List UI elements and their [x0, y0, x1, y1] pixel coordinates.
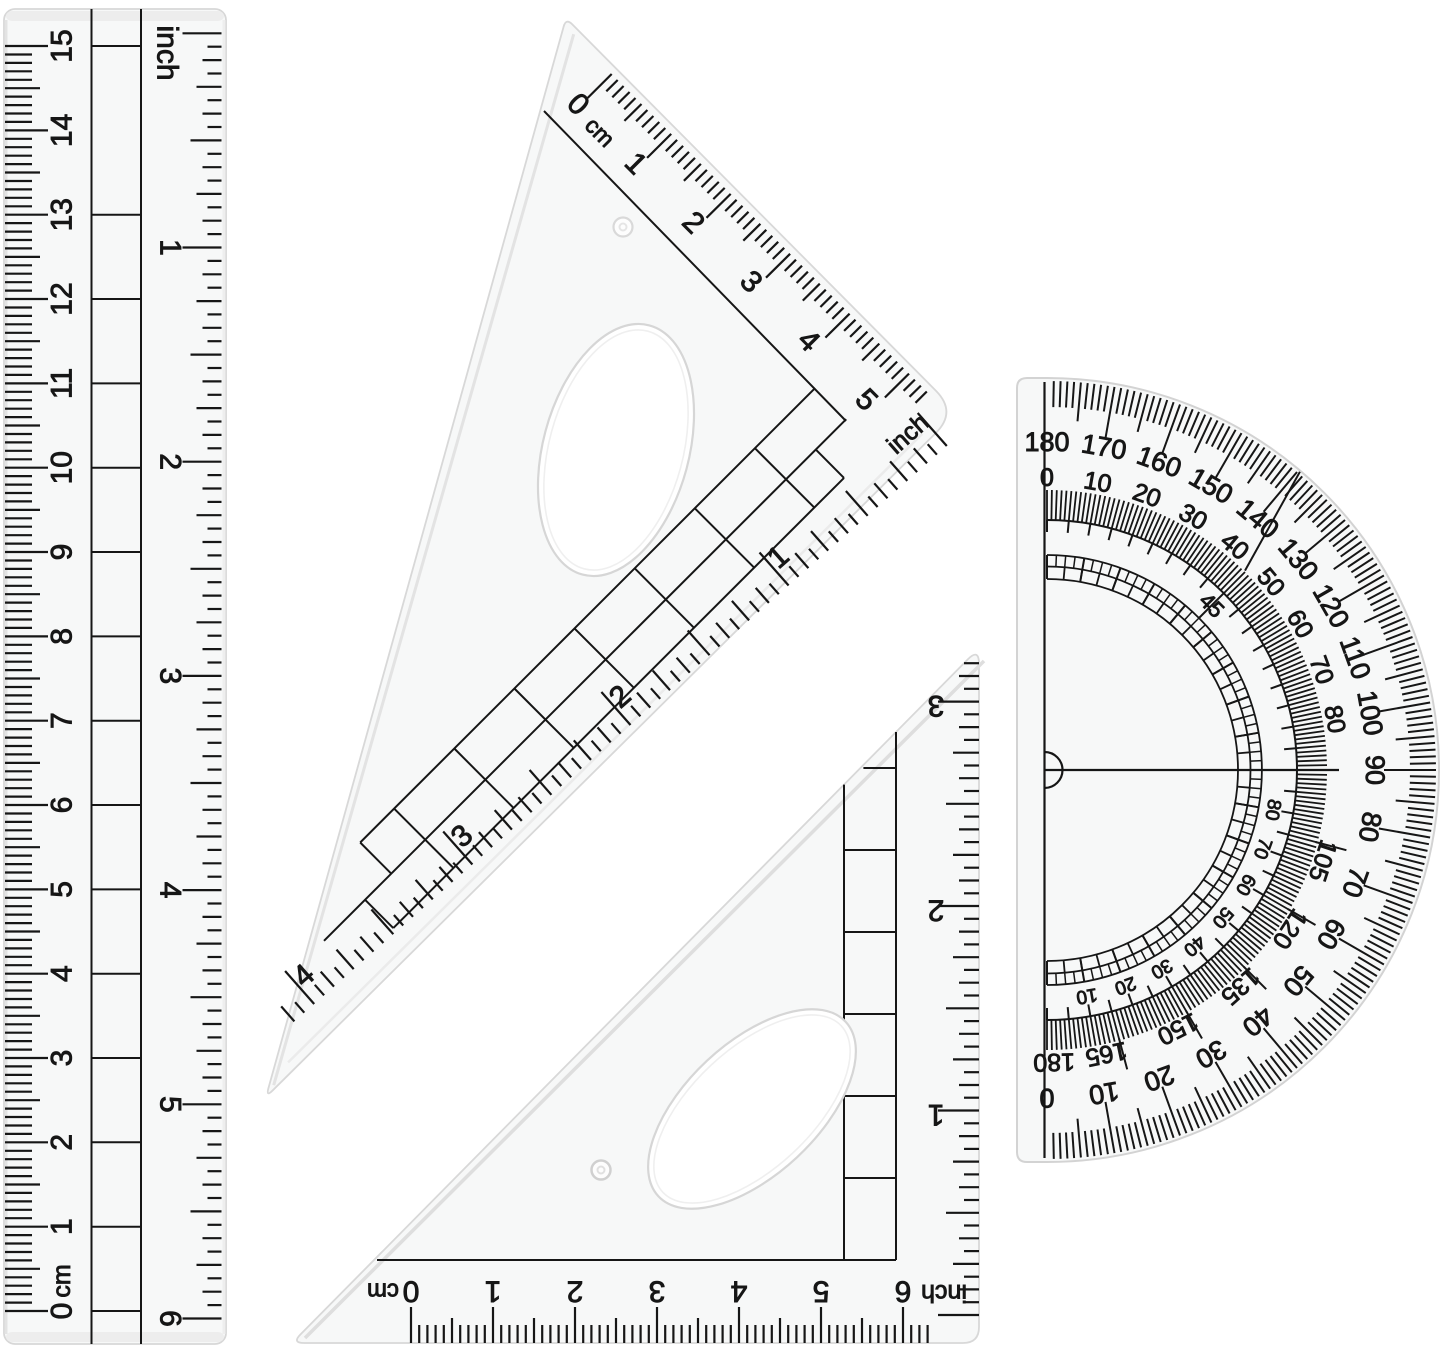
svg-text:2: 2 [154, 453, 187, 470]
svg-text:90: 90 [1360, 755, 1390, 785]
svg-text:180: 180 [1024, 427, 1069, 457]
svg-text:9: 9 [46, 544, 79, 561]
svg-text:1: 1 [46, 1218, 79, 1235]
svg-text:2: 2 [928, 894, 945, 927]
svg-text:10: 10 [1082, 466, 1114, 498]
svg-text:8: 8 [46, 628, 79, 645]
svg-text:10: 10 [1087, 1076, 1122, 1111]
svg-text:6: 6 [895, 1275, 912, 1308]
svg-text:0: 0 [46, 1303, 79, 1320]
svg-text:3: 3 [46, 1050, 79, 1067]
svg-text:5: 5 [813, 1275, 830, 1308]
svg-text:inch: inch [921, 1279, 967, 1307]
svg-text:5: 5 [154, 1096, 187, 1113]
svg-text:5: 5 [46, 881, 79, 898]
svg-text:80: 80 [1318, 703, 1350, 735]
svg-text:2: 2 [567, 1275, 584, 1308]
svg-text:10: 10 [46, 451, 79, 484]
svg-text:4: 4 [154, 882, 187, 899]
svg-text:3: 3 [649, 1275, 666, 1308]
svg-text:cm: cm [48, 1264, 76, 1297]
svg-text:4: 4 [46, 965, 79, 982]
svg-text:cm: cm [367, 1278, 399, 1305]
svg-text:6: 6 [46, 797, 79, 814]
svg-text:6: 6 [154, 1310, 187, 1327]
svg-text:4: 4 [731, 1275, 748, 1308]
svg-text:1: 1 [154, 239, 187, 256]
svg-text:0: 0 [403, 1275, 420, 1308]
svg-text:3: 3 [154, 668, 187, 685]
svg-text:3: 3 [928, 689, 945, 722]
svg-text:2: 2 [46, 1134, 79, 1151]
svg-text:13: 13 [46, 198, 79, 231]
svg-text:0: 0 [1040, 464, 1054, 492]
svg-text:12: 12 [46, 282, 79, 315]
svg-text:0: 0 [1039, 1083, 1054, 1113]
svg-text:15: 15 [46, 29, 79, 62]
svg-text:1: 1 [485, 1275, 502, 1308]
svg-text:80: 80 [1260, 798, 1284, 822]
svg-text:7: 7 [46, 712, 79, 729]
svg-text:1: 1 [928, 1098, 945, 1131]
svg-text:14: 14 [46, 114, 79, 147]
svg-text:11: 11 [46, 368, 79, 399]
svg-text:10: 10 [1075, 983, 1099, 1007]
svg-text:80: 80 [1353, 810, 1388, 845]
svg-text:inch: inch [151, 25, 184, 80]
svg-text:180: 180 [1033, 1047, 1075, 1076]
